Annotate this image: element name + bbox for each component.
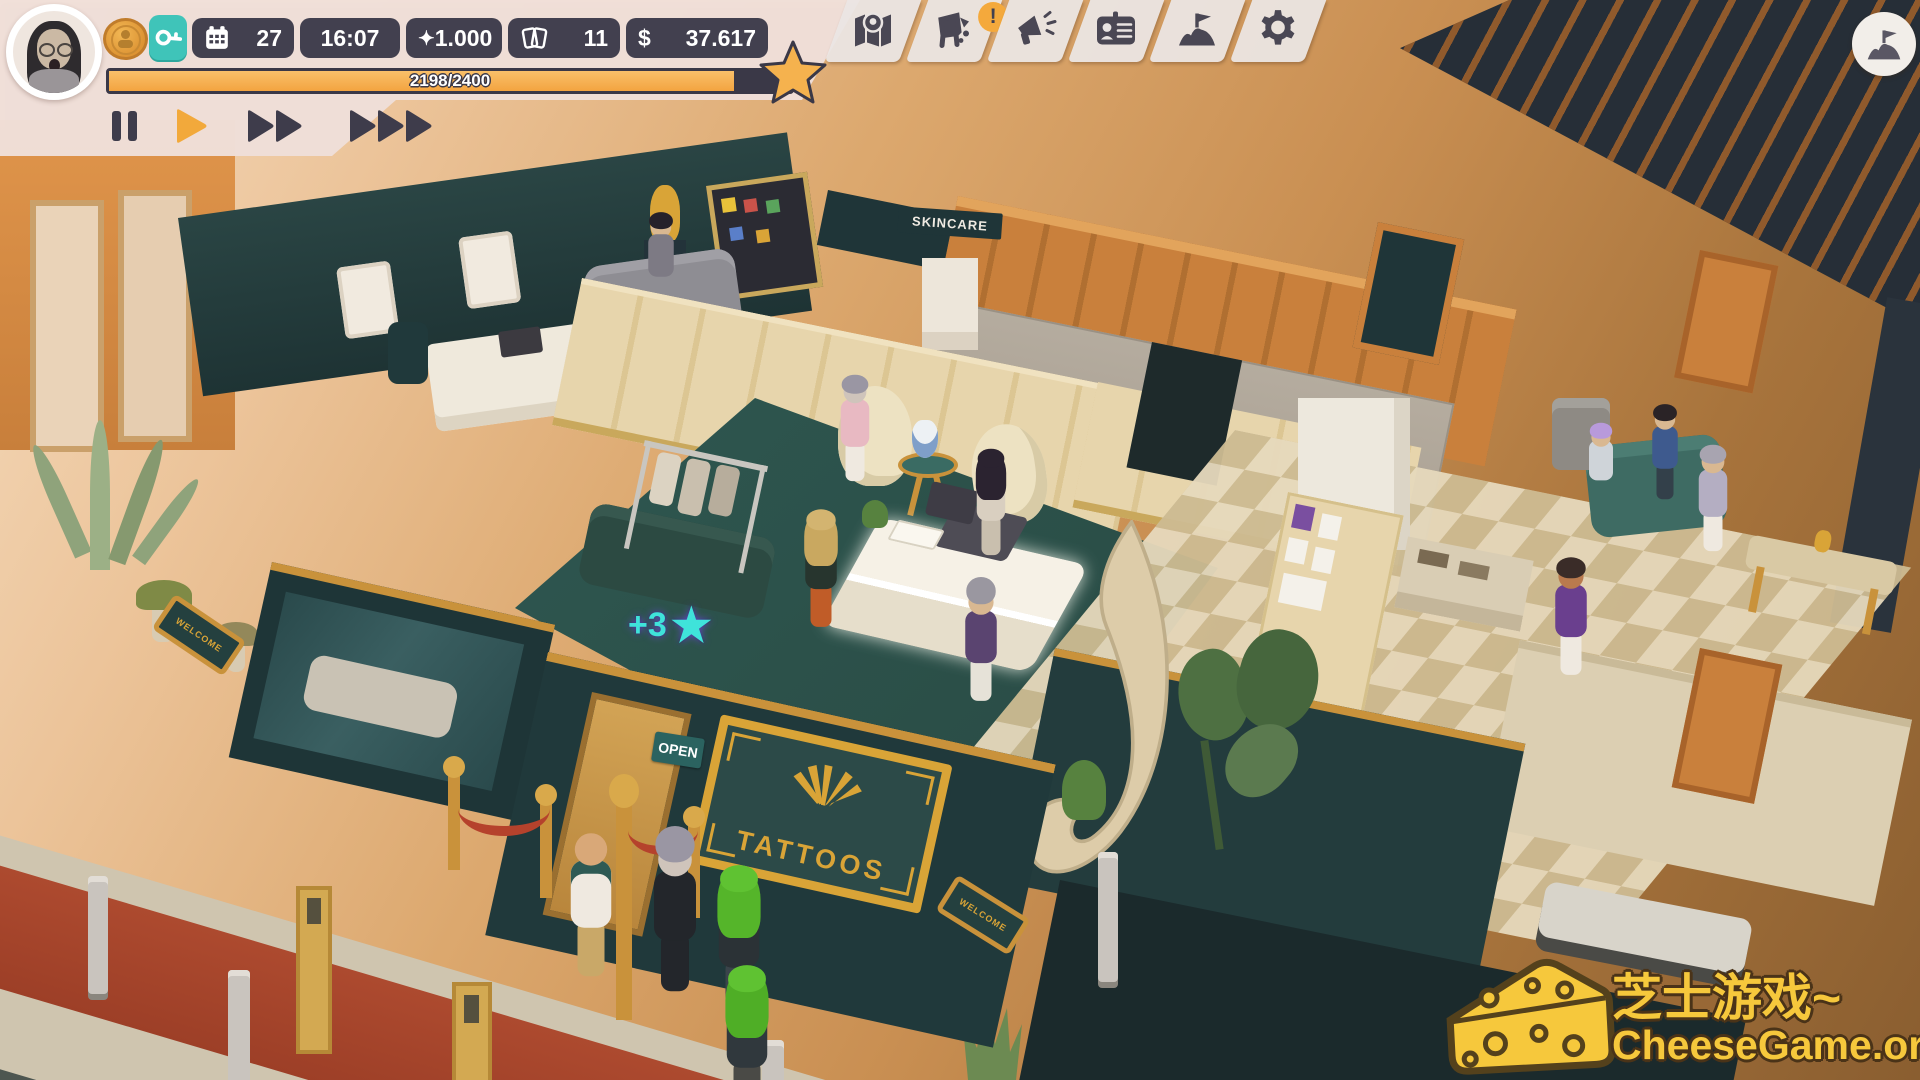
money-value: 37.617 [686,25,756,52]
decorate-button[interactable]: ! [906,0,1003,62]
char-receptionist [969,445,1013,555]
char-hooded-visitor [643,829,707,991]
floating-reward: +3 ★ [628,598,712,652]
cards-pill: 11 [508,18,620,58]
reward-amount: +3 [628,606,667,645]
staff-button[interactable] [1068,0,1165,62]
char-tattoo-artist [1645,401,1684,500]
monstera-plant [1178,630,1328,850]
player-avatar[interactable] [6,4,102,100]
art-deco-fan-icon [786,750,869,813]
reward-star-icon: ★ [671,598,712,652]
xp-bar: 2198/2400 [106,68,794,94]
pause-button[interactable] [110,100,140,152]
time-value: 16:07 [321,25,380,52]
time-pill: 16:07 [300,18,400,58]
avatar-glasses [57,43,73,57]
char-walker-gray [1691,441,1735,551]
agave-plant [30,420,210,590]
left-window [30,200,104,452]
small-plant [1062,760,1106,820]
watermark-title: 芝士游戏~ [1612,958,1841,1030]
rating-value: 1.000 [435,25,493,52]
bollard [88,876,108,994]
map-button[interactable] [825,0,922,62]
money-pill: $ 37.617 [626,18,768,58]
game-screen: TATTOOS OPEN SKINCARE WELCOME WELCOME [0,0,1920,1080]
mountain-flag-icon [1864,25,1904,63]
desk-plant [862,500,888,528]
wood-post [296,886,332,1054]
avatar-shirt [29,69,79,93]
calendar-icon [204,25,230,51]
xp-star-icon [758,38,828,106]
velvet-rope [458,782,550,836]
cards-value: 11 [584,25,608,52]
avatar-glasses [39,43,55,57]
dollar-icon: $ [638,25,651,52]
fast-forward-button[interactable] [244,100,306,152]
settings-button[interactable] [1230,0,1327,62]
fastest-forward-button[interactable] [346,100,436,152]
wood-post [452,982,492,1080]
bollard [228,970,250,1080]
reception-poster [458,230,521,309]
calendar-pill: 27 [192,18,294,58]
play-button[interactable] [172,100,210,152]
sparkle-icon: ✦ [418,26,435,51]
milestone-corner-button[interactable] [1852,12,1916,76]
bollard [1098,852,1118,982]
key-button[interactable] [149,15,187,60]
coin-icon [103,18,148,60]
cheese-logo [1435,947,1619,1080]
char-green-hair-visitor [716,960,778,1080]
rating-pill: ✦ 1.000 [406,18,502,58]
xp-label: 2198/2400 [109,71,791,91]
calendar-value: 27 [256,25,282,52]
char-tattoo-customer [1583,404,1620,497]
key-icon [150,19,187,56]
char-blonde-customer [797,505,845,627]
toolbar: ! [836,0,1322,62]
char-bald-visitor [560,820,622,977]
char-purple-outfit [1547,553,1595,675]
skincare-shelf [922,258,978,350]
watermark-site: CheeseGame.org [1612,1022,1920,1069]
vase [912,420,938,458]
cards-icon [520,25,548,51]
char-pink-sweater [833,371,877,481]
milestones-button[interactable] [1149,0,1246,62]
reception-chair [388,322,428,384]
char-gray-bob-customer [957,579,1005,701]
